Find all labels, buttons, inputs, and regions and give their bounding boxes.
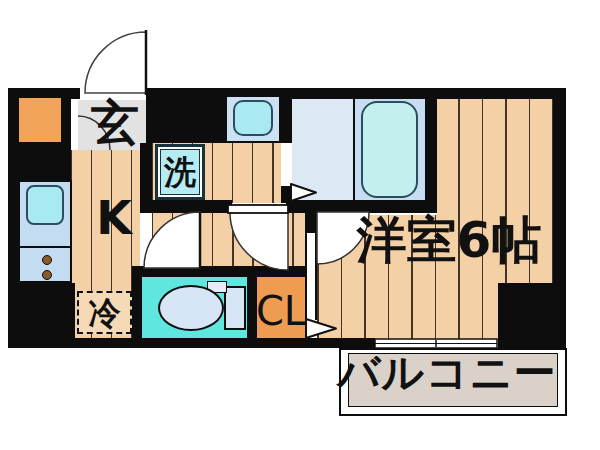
- stove-knob: [42, 255, 52, 265]
- bath-door-opening: [281, 143, 292, 186]
- wall-entry-block: [146, 88, 225, 143]
- kitchen-sink: [26, 185, 64, 225]
- balcony-window: [375, 339, 497, 348]
- toilet-tank: [224, 286, 246, 330]
- vanity-sink-bowl: [233, 100, 273, 136]
- floorplan-canvas: 洗 冷 玄 K CL 洋室6: [0, 0, 600, 450]
- wall-toilet-left: [132, 266, 142, 338]
- counter-divider: [20, 246, 70, 248]
- refrigerator-space: 冷: [77, 291, 132, 334]
- wall-room-divider: [305, 203, 317, 233]
- balcony-label: バルコニー: [338, 352, 557, 394]
- refrigerator-label: 冷: [89, 297, 121, 329]
- washer-label: 洗: [164, 156, 196, 188]
- meter-box: [18, 97, 62, 143]
- wall-corner-notch: [498, 283, 563, 348]
- wall-left: [8, 88, 18, 348]
- kitchen-label-box: K: [92, 194, 136, 242]
- hallway-floor: [152, 213, 305, 266]
- wall-corridor-bottom: [132, 266, 317, 277]
- main-room-label: 洋室6帖: [357, 215, 542, 265]
- balcony-label-box: バルコニー: [316, 350, 578, 396]
- wall-bath-left-upper: [281, 93, 292, 143]
- wall-entry-left-sliver: [62, 88, 71, 150]
- stove-knob: [42, 270, 52, 280]
- entrance-label-box: 玄: [86, 96, 144, 148]
- kitchen-label: K: [96, 195, 132, 241]
- wall-bath-left-lower: [281, 186, 292, 203]
- washing-machine: 洗: [155, 144, 205, 200]
- wall-bath-right: [425, 93, 437, 205]
- wall-hall-top-left: [140, 200, 232, 213]
- bathtub: [361, 101, 418, 198]
- wall-kitchen-block-upper: [18, 143, 71, 180]
- closet-label-box: CL: [255, 286, 307, 336]
- entrance-door-arc: [85, 32, 146, 93]
- entrance-label: 玄: [91, 98, 139, 146]
- toilet-bowl: [158, 285, 224, 331]
- main-room-label-box: 洋室6帖: [343, 212, 555, 268]
- wall-bottom: [8, 338, 375, 348]
- closet-label: CL: [256, 291, 306, 331]
- wall-kitchen-block-lower: [18, 283, 75, 338]
- hall-door-leaf: [228, 205, 288, 213]
- wall-corridor-divider: [140, 143, 152, 208]
